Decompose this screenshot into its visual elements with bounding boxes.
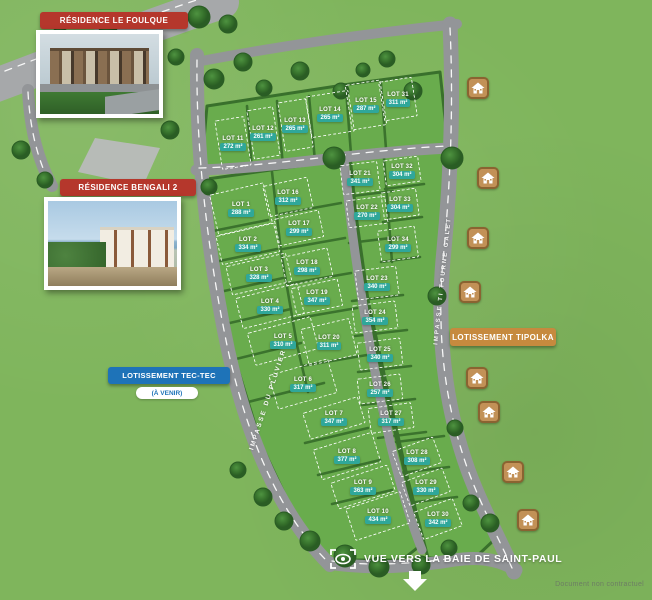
view-banner-text: VUE VERS LA BAIE DE SAINT-PAUL xyxy=(364,553,562,565)
banner-residence-bengali-2: RÉSIDENCE BENGALI 2 xyxy=(60,179,196,196)
eye-viewfinder-icon xyxy=(330,549,356,569)
house-icon xyxy=(466,367,488,389)
site-plan: LOT 1288 m²LOT 2334 m²LOT 3328 m²LOT 433… xyxy=(0,0,652,600)
disclaimer-text: Document non contractuel xyxy=(555,581,644,588)
house-icon xyxy=(502,461,524,483)
house-icon xyxy=(517,509,539,531)
banner-residence-le-foulque: RÉSIDENCE LE FOULQUE xyxy=(40,12,188,29)
house-icon xyxy=(478,401,500,423)
down-arrow-icon xyxy=(403,571,427,592)
view-banner: VUE VERS LA BAIE DE SAINT-PAUL xyxy=(330,549,562,569)
house-icon xyxy=(467,77,489,99)
a-venir-pill: (À VENIR) xyxy=(136,387,198,399)
banner-lotissement-tipolka: LOTISSEMENT TIPOLKA xyxy=(450,328,556,346)
residence-le-foulque-photo xyxy=(36,30,163,118)
banner-lotissement-tec-tec: LOTISSEMENT TEC-TEC xyxy=(108,367,230,384)
house-icon xyxy=(477,167,499,189)
house-icon xyxy=(467,227,489,249)
house-icon xyxy=(459,281,481,303)
residence-bengali-2-photo xyxy=(44,197,181,290)
